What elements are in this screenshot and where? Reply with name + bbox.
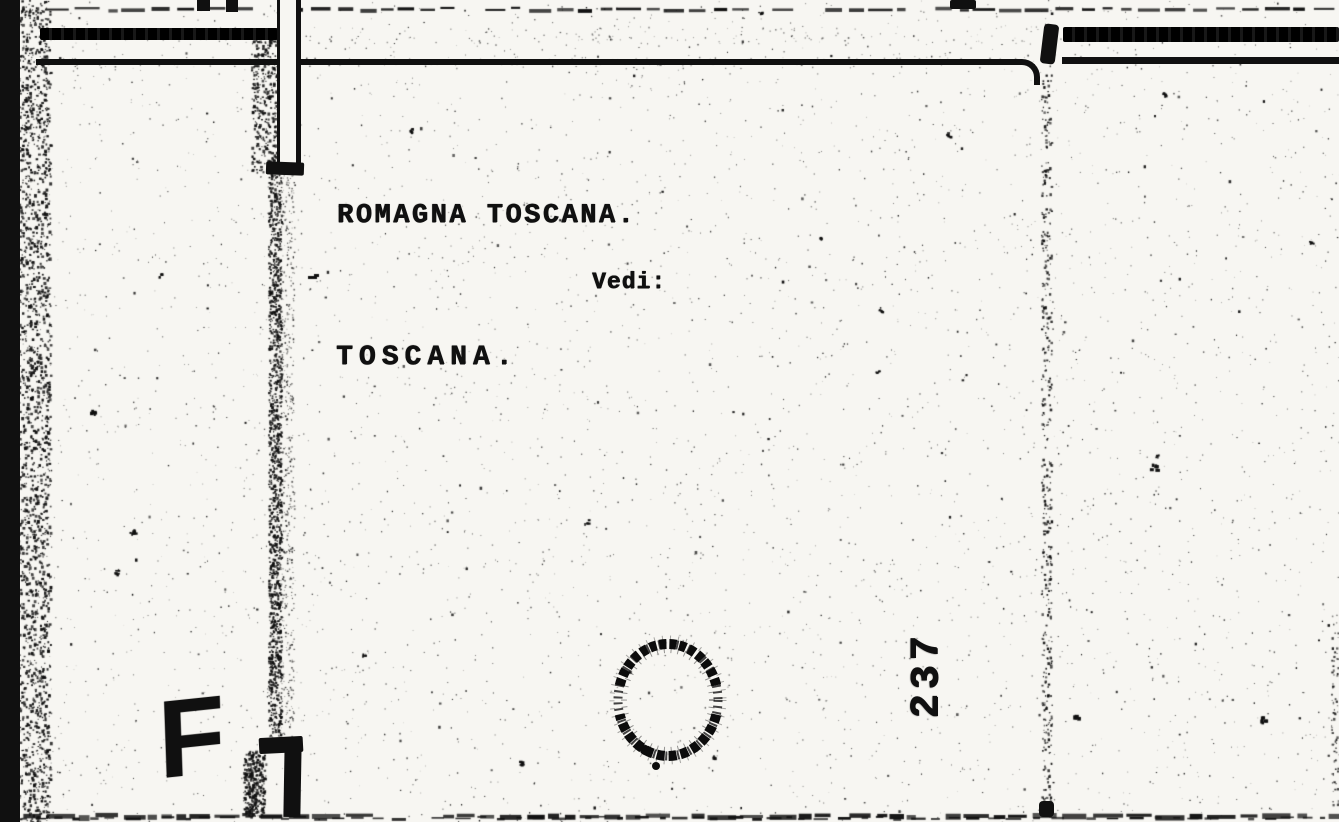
card-top-edge-line [36, 59, 1022, 65]
sheet-number: 237 [901, 631, 955, 719]
card-heading: ROMAGNA TOSCANA. [337, 201, 636, 231]
card-behind-tab-mark-right [226, 0, 238, 12]
card-behind-second-edge-right [1062, 57, 1339, 64]
card-index-tab-bottom-edge [266, 161, 304, 175]
card-index-tab [277, 0, 301, 168]
stamp-ring-outer-fuzz [612, 638, 724, 762]
card-right-edge-end-blob [1039, 801, 1054, 817]
card-behind-top-edge-right [1063, 27, 1339, 42]
stamp-ring-top-arc [620, 644, 717, 686]
cross-reference-label: Vedi: [592, 269, 666, 295]
stamp-ink-dot-2 [652, 762, 660, 770]
card-behind-top-edge-left [40, 28, 278, 40]
stamp-ring-inner-fuzz [624, 650, 712, 750]
card-behind-tab-mark-left [197, 0, 210, 11]
handwritten-letter-f: F [156, 679, 227, 796]
cross-reference-target: TOSCANA. [336, 342, 518, 373]
scan-artifact-top-blob [950, 0, 976, 9]
scan-edge-left-band [0, 0, 20, 822]
scanned-catalog-card: ROMAGNA TOSCANA. Vedi: TOSCANA. 237 F [0, 0, 1339, 822]
stamp-ink-dot-1 [640, 745, 650, 755]
fold-strip-bottom-column [283, 743, 301, 817]
stamp-ring-mark [596, 622, 744, 780]
